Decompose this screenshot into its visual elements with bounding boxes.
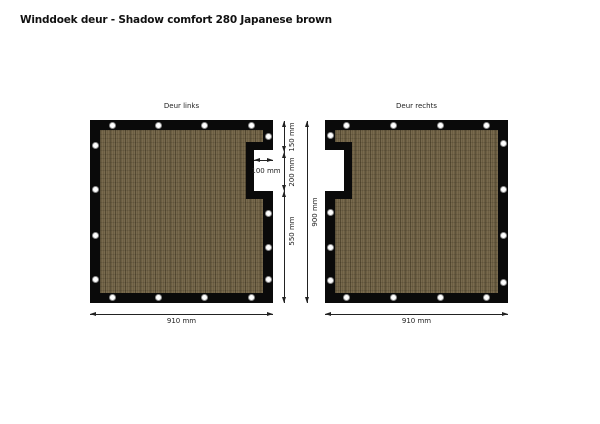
grommet — [93, 187, 98, 192]
grommet — [266, 277, 271, 282]
dim-line-top-segment — [284, 121, 285, 152]
grommet — [344, 123, 349, 128]
grommet — [501, 187, 506, 192]
fabric-right — [325, 120, 508, 303]
grommet — [501, 141, 506, 146]
grommet — [266, 134, 271, 139]
dim-label-notch-width: 100 mm — [251, 167, 280, 175]
page-title: Winddoek deur - Shadow comfort 280 Japan… — [20, 14, 332, 26]
drawing-sheet: Winddoek deur - Shadow comfort 280 Japan… — [0, 0, 600, 424]
dim-label-top-segment: 150 mm — [288, 122, 296, 151]
panel-right-title: Deur rechts — [396, 102, 437, 110]
grommet — [484, 123, 489, 128]
grommet — [156, 123, 161, 128]
grommet — [344, 295, 349, 300]
grommet — [328, 133, 333, 138]
grommet — [110, 295, 115, 300]
grommet — [391, 123, 396, 128]
dim-line-total-height — [307, 121, 308, 303]
door-panel-right — [325, 120, 508, 303]
dim-line-width-left — [90, 314, 273, 315]
grommet — [438, 295, 443, 300]
grommet — [391, 295, 396, 300]
grommet — [93, 143, 98, 148]
grommet — [501, 233, 506, 238]
panel-left-title: Deur links — [164, 102, 199, 110]
grommet — [266, 245, 271, 250]
grommet — [93, 277, 98, 282]
grommet — [93, 233, 98, 238]
grommet — [202, 295, 207, 300]
dim-line-notch-height — [284, 152, 285, 191]
grommet — [328, 245, 333, 250]
dim-label-total-height: 900 mm — [311, 197, 319, 226]
dim-label-width-right: 910 mm — [402, 317, 431, 325]
grommet — [249, 123, 254, 128]
dim-line-width-right — [325, 314, 508, 315]
grommet — [249, 295, 254, 300]
fabric-left — [90, 120, 273, 303]
grommet — [110, 123, 115, 128]
grommet — [328, 210, 333, 215]
dim-label-width-left: 910 mm — [167, 317, 196, 325]
dim-label-notch-height: 200 mm — [288, 157, 296, 186]
grommet — [156, 295, 161, 300]
dim-line-notch-width — [254, 160, 273, 161]
grommet — [501, 280, 506, 285]
grommet — [266, 211, 271, 216]
grommet — [438, 123, 443, 128]
grommet — [484, 295, 489, 300]
grommet — [328, 278, 333, 283]
dim-line-bottom-segment — [284, 191, 285, 303]
dim-label-bottom-segment: 550 mm — [288, 216, 296, 245]
door-panel-left — [90, 120, 273, 303]
grommet — [202, 123, 207, 128]
